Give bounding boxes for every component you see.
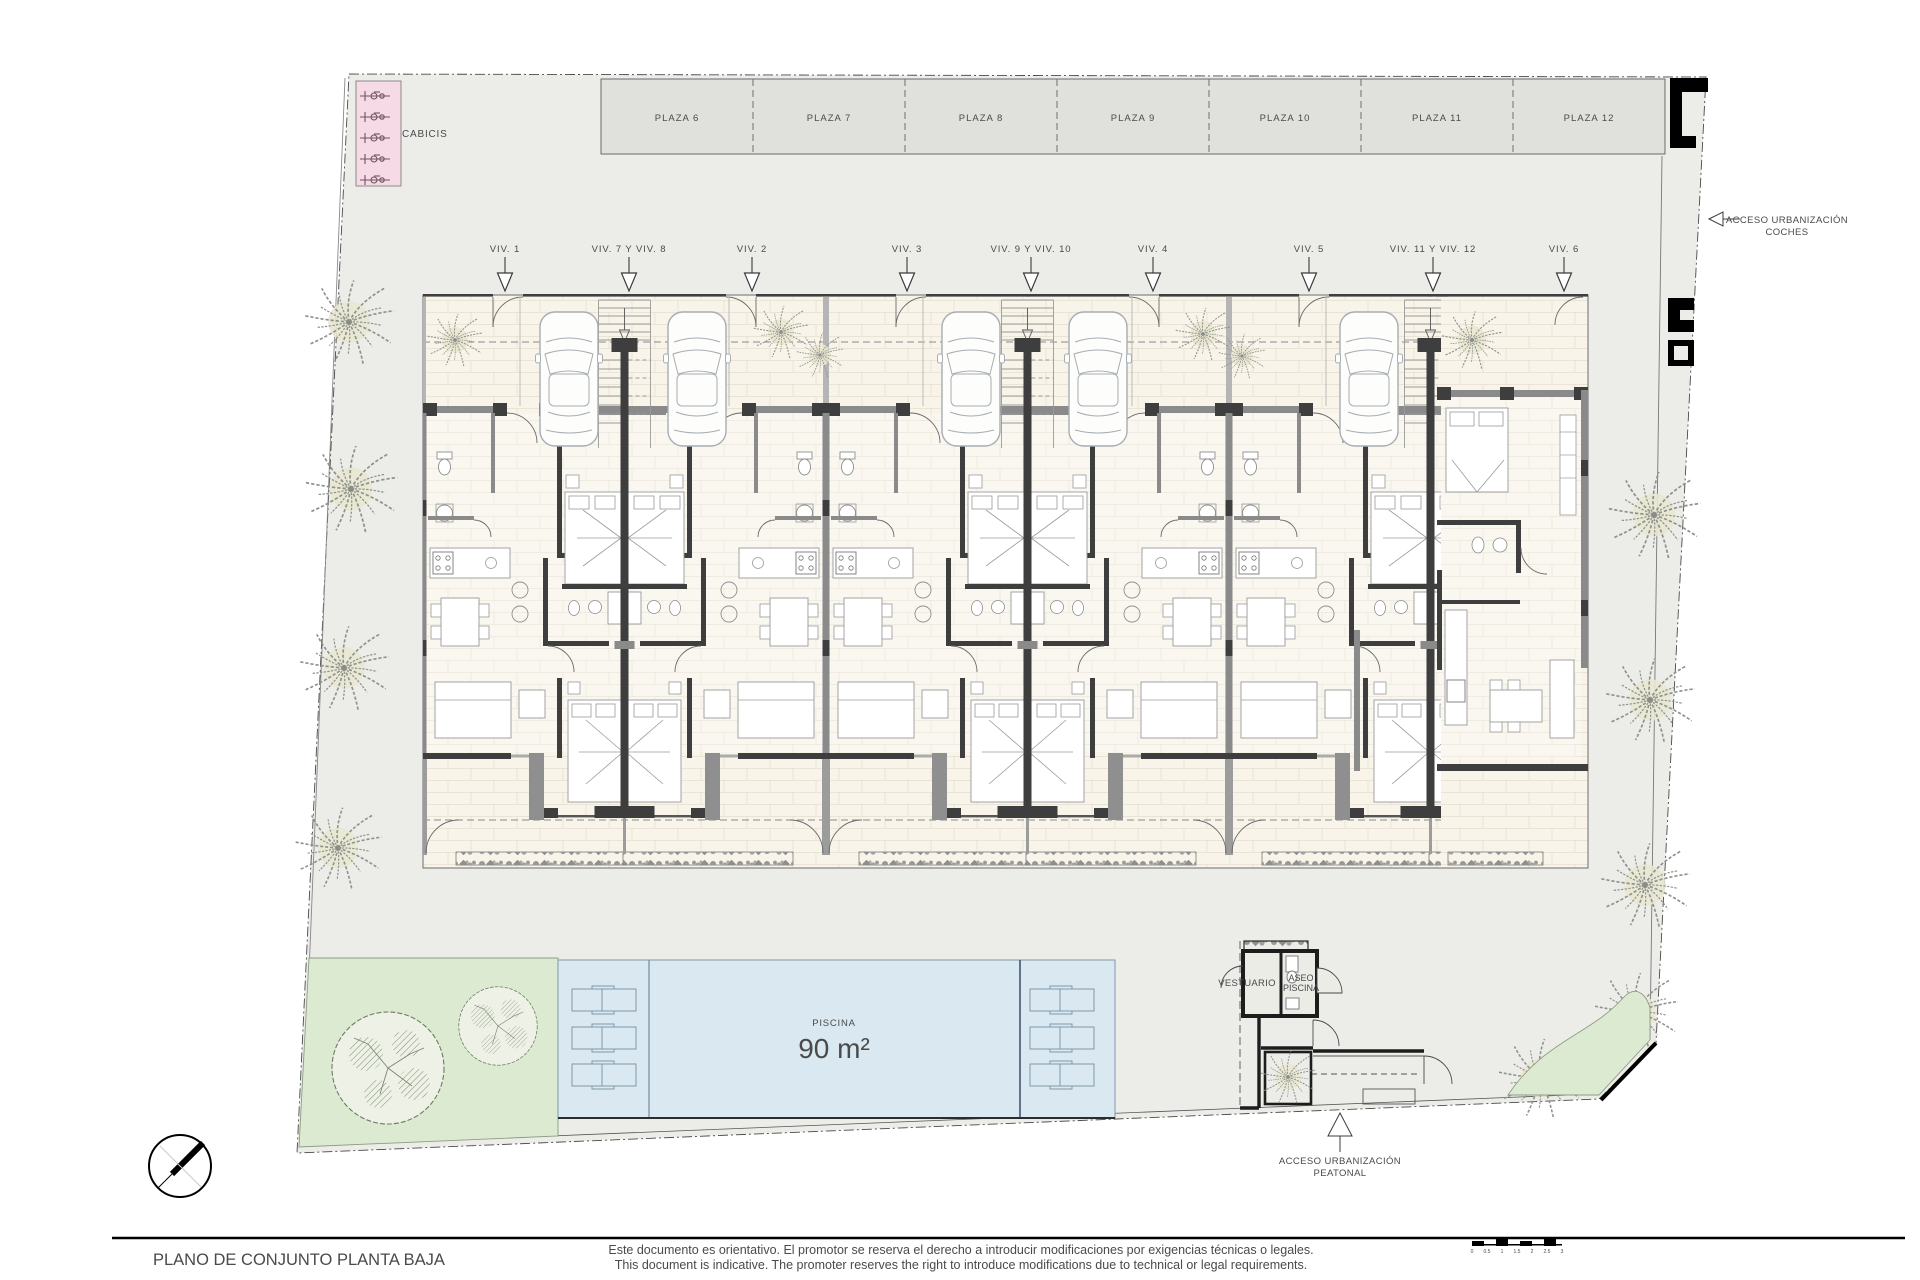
svg-text:Este documento es orientativo.: Este documento es orientativo. El promot…: [608, 1243, 1313, 1257]
svg-text:ACCESO URBANIZACIÓN: ACCESO URBANIZACIÓN: [1726, 215, 1848, 226]
svg-text:CABICIS: CABICIS: [402, 129, 448, 140]
svg-text:PLAZA 7: PLAZA 7: [807, 113, 852, 124]
svg-text:PLANO DE CONJUNTO PLANTA BAJA: PLANO DE CONJUNTO PLANTA BAJA: [153, 1251, 445, 1269]
svg-text:VIV. 11 Y VIV. 12: VIV. 11 Y VIV. 12: [1390, 244, 1476, 255]
svg-text:PEATONAL: PEATONAL: [1313, 1168, 1366, 1179]
svg-text:VIV. 5: VIV. 5: [1294, 244, 1324, 255]
svg-text:PLAZA 6: PLAZA 6: [655, 113, 700, 124]
svg-text:2: 2: [1531, 1249, 1534, 1255]
svg-text:PLAZA 8: PLAZA 8: [959, 113, 1004, 124]
svg-text:2.5: 2.5: [1544, 1249, 1551, 1255]
svg-text:PLAZA 11: PLAZA 11: [1412, 113, 1462, 124]
svg-text:PLAZA 9: PLAZA 9: [1111, 113, 1156, 124]
svg-text:VESTUARIO: VESTUARIO: [1218, 978, 1276, 989]
svg-text:VIV. 6: VIV. 6: [1549, 244, 1579, 255]
svg-text:0: 0: [1471, 1249, 1474, 1255]
svg-text:VIV. 1: VIV. 1: [490, 244, 520, 255]
svg-text:COCHES: COCHES: [1765, 227, 1808, 238]
svg-text:VIV. 4: VIV. 4: [1138, 244, 1168, 255]
svg-text:PISCINA: PISCINA: [1283, 983, 1319, 993]
svg-text:3: 3: [1561, 1249, 1564, 1255]
svg-text:This document is indicative. T: This document is indicative. The promote…: [615, 1258, 1307, 1272]
svg-text:90 m²: 90 m²: [798, 1033, 870, 1064]
svg-text:PLAZA 12: PLAZA 12: [1564, 113, 1615, 124]
svg-text:VIV. 2: VIV. 2: [737, 244, 767, 255]
svg-text:1: 1: [1501, 1249, 1504, 1255]
svg-text:PLAZA 10: PLAZA 10: [1260, 113, 1311, 124]
svg-text:ASEO: ASEO: [1288, 973, 1313, 983]
svg-text:ACCESO URBANIZACIÓN: ACCESO URBANIZACIÓN: [1279, 1156, 1401, 1167]
svg-text:VIV. 7 Y VIV. 8: VIV. 7 Y VIV. 8: [592, 244, 667, 255]
svg-text:PISCINA: PISCINA: [812, 1018, 856, 1029]
svg-text:0.5: 0.5: [1484, 1249, 1491, 1255]
svg-text:VIV. 3: VIV. 3: [892, 244, 922, 255]
svg-text:1.5: 1.5: [1514, 1249, 1521, 1255]
svg-text:VIV. 9 Y VIV. 10: VIV. 9 Y VIV. 10: [991, 244, 1072, 255]
